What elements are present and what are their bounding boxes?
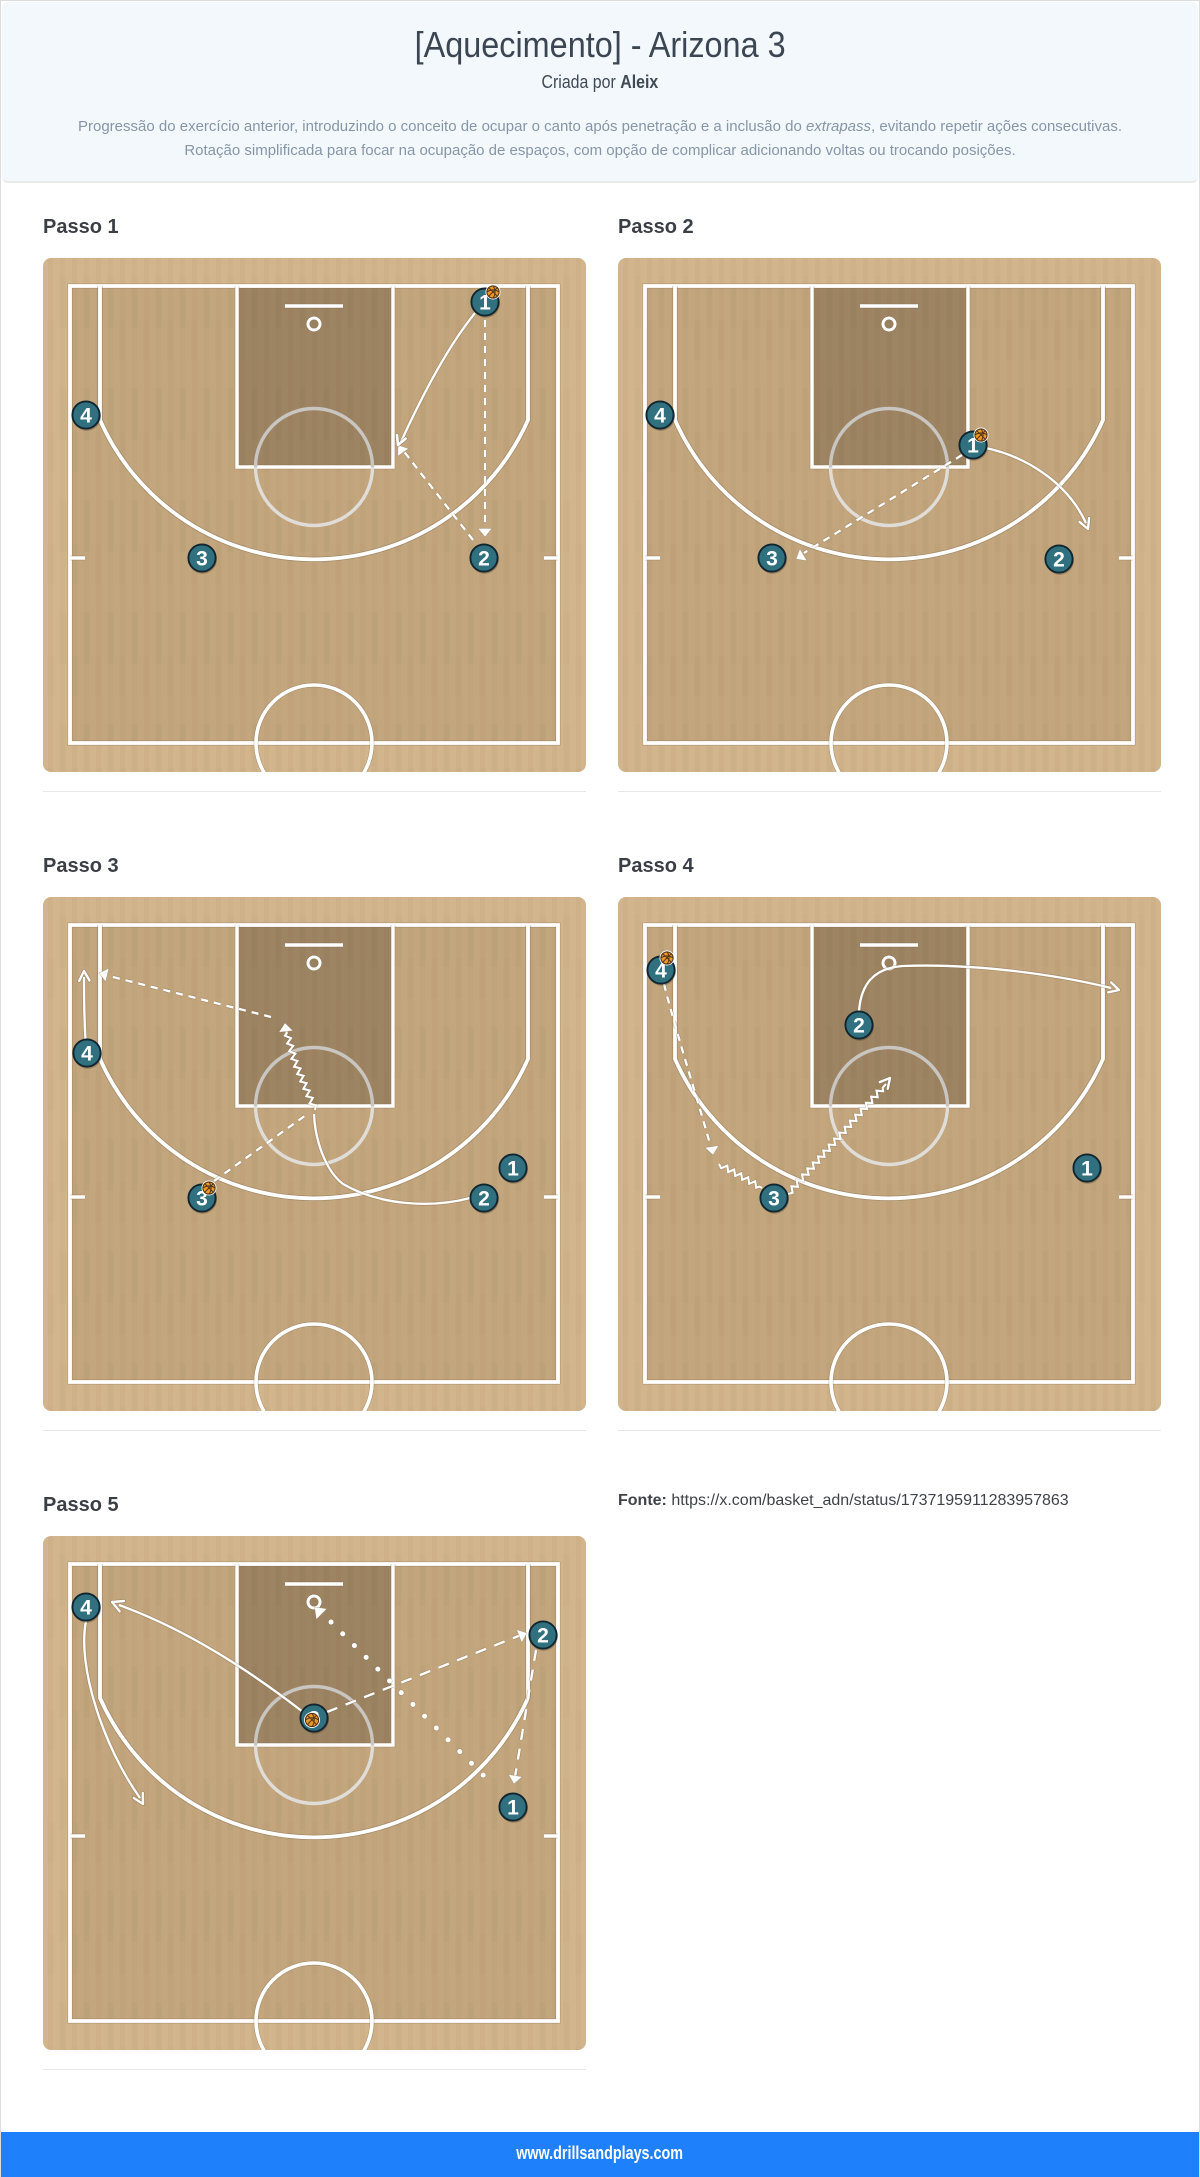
svg-text:3: 3 [196, 548, 208, 571]
svg-text:2: 2 [537, 1625, 549, 1648]
svg-text:3: 3 [766, 548, 778, 571]
svg-text:2: 2 [478, 548, 490, 571]
svg-text:2: 2 [1053, 549, 1065, 572]
svg-text:1: 1 [1081, 1158, 1093, 1181]
svg-text:1: 1 [507, 1158, 519, 1181]
svg-text:4: 4 [81, 1043, 93, 1066]
svg-text:4: 4 [654, 405, 666, 428]
svg-text:2: 2 [478, 1188, 490, 1211]
svg-text:3: 3 [768, 1188, 780, 1211]
svg-text:4: 4 [80, 1597, 92, 1620]
svg-text:1: 1 [507, 1797, 519, 1820]
svg-text:2: 2 [853, 1015, 865, 1038]
svg-text:4: 4 [80, 405, 92, 428]
